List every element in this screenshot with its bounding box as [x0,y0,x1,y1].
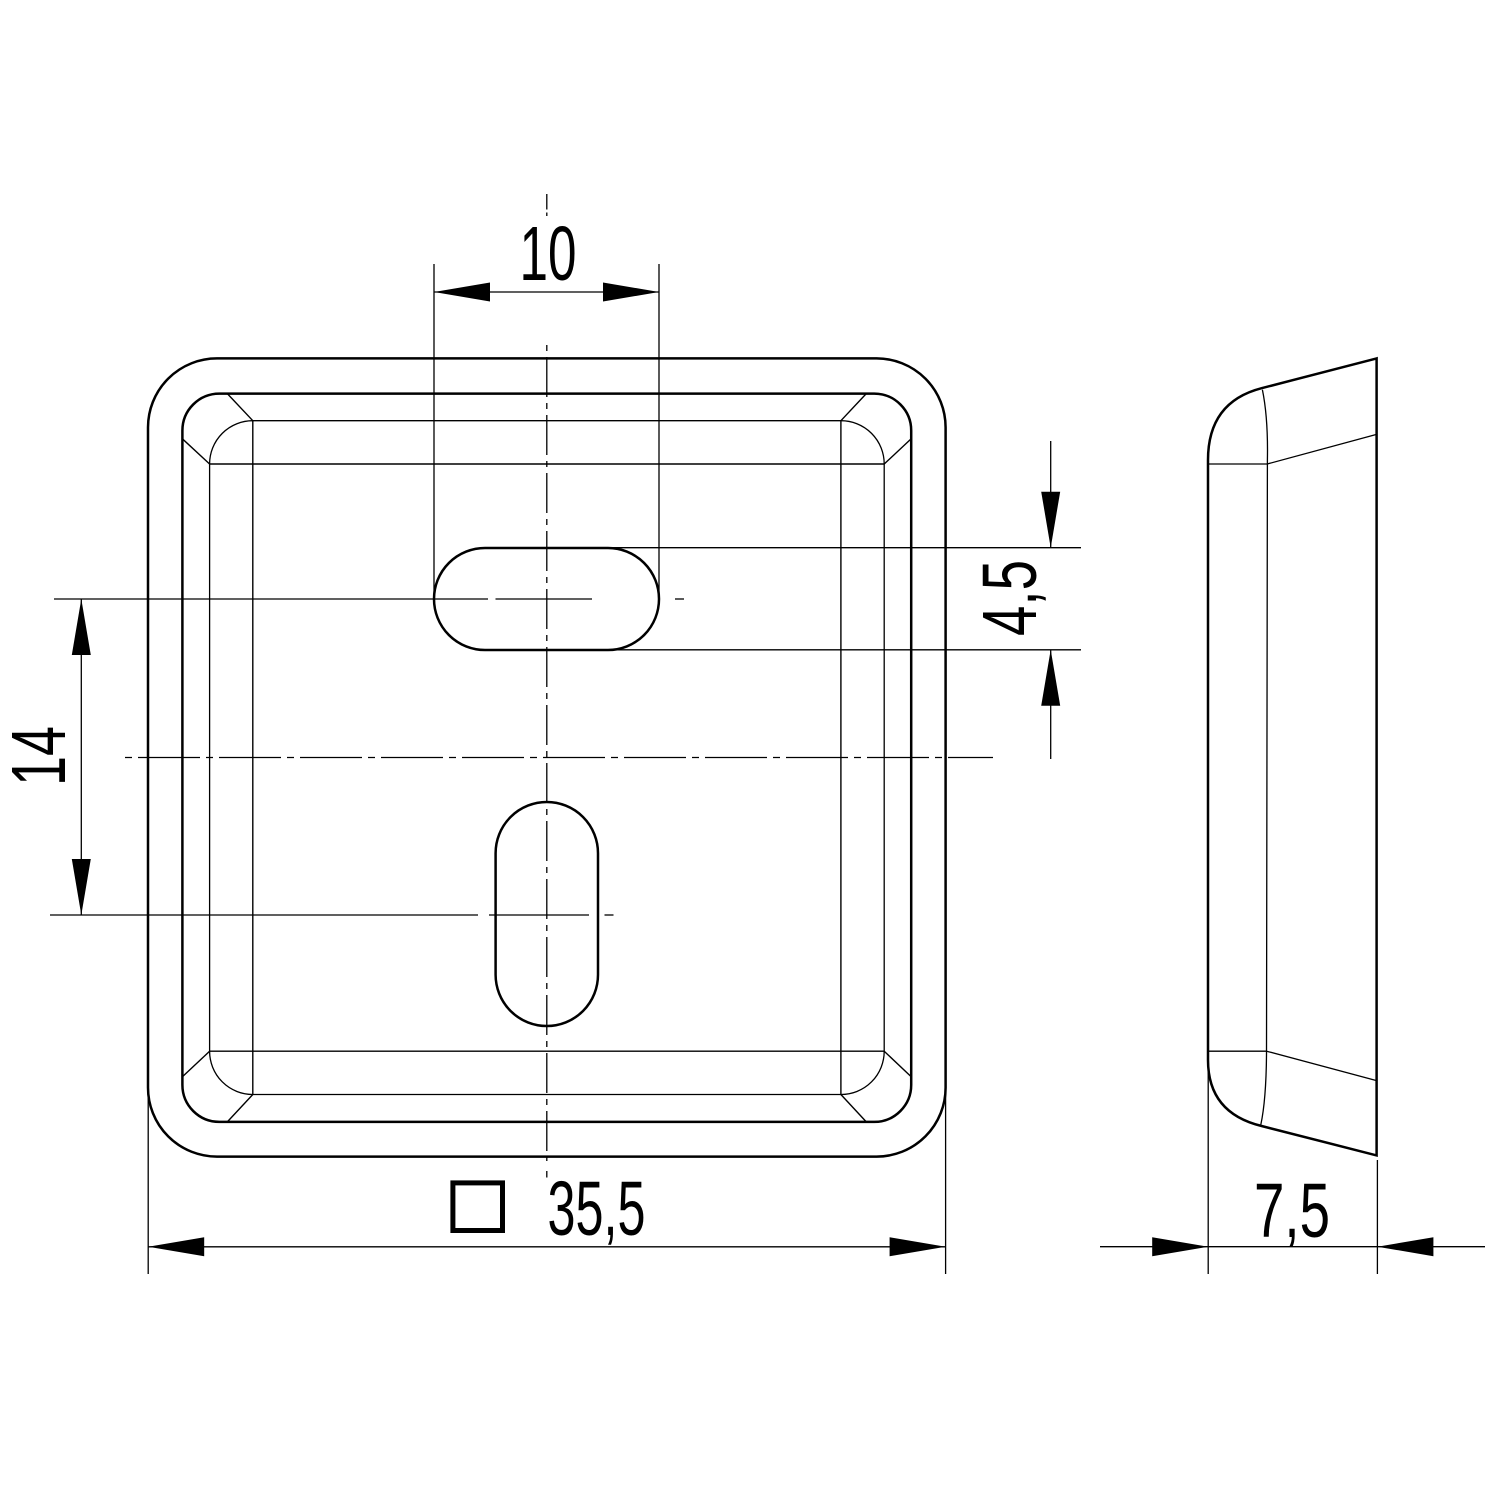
svg-text:14: 14 [0,726,82,786]
svg-text:10: 10 [520,211,577,297]
svg-text:4,5: 4,5 [967,560,1053,636]
svg-text:7,5: 7,5 [1254,1168,1330,1254]
svg-text:35,5: 35,5 [548,1166,646,1252]
